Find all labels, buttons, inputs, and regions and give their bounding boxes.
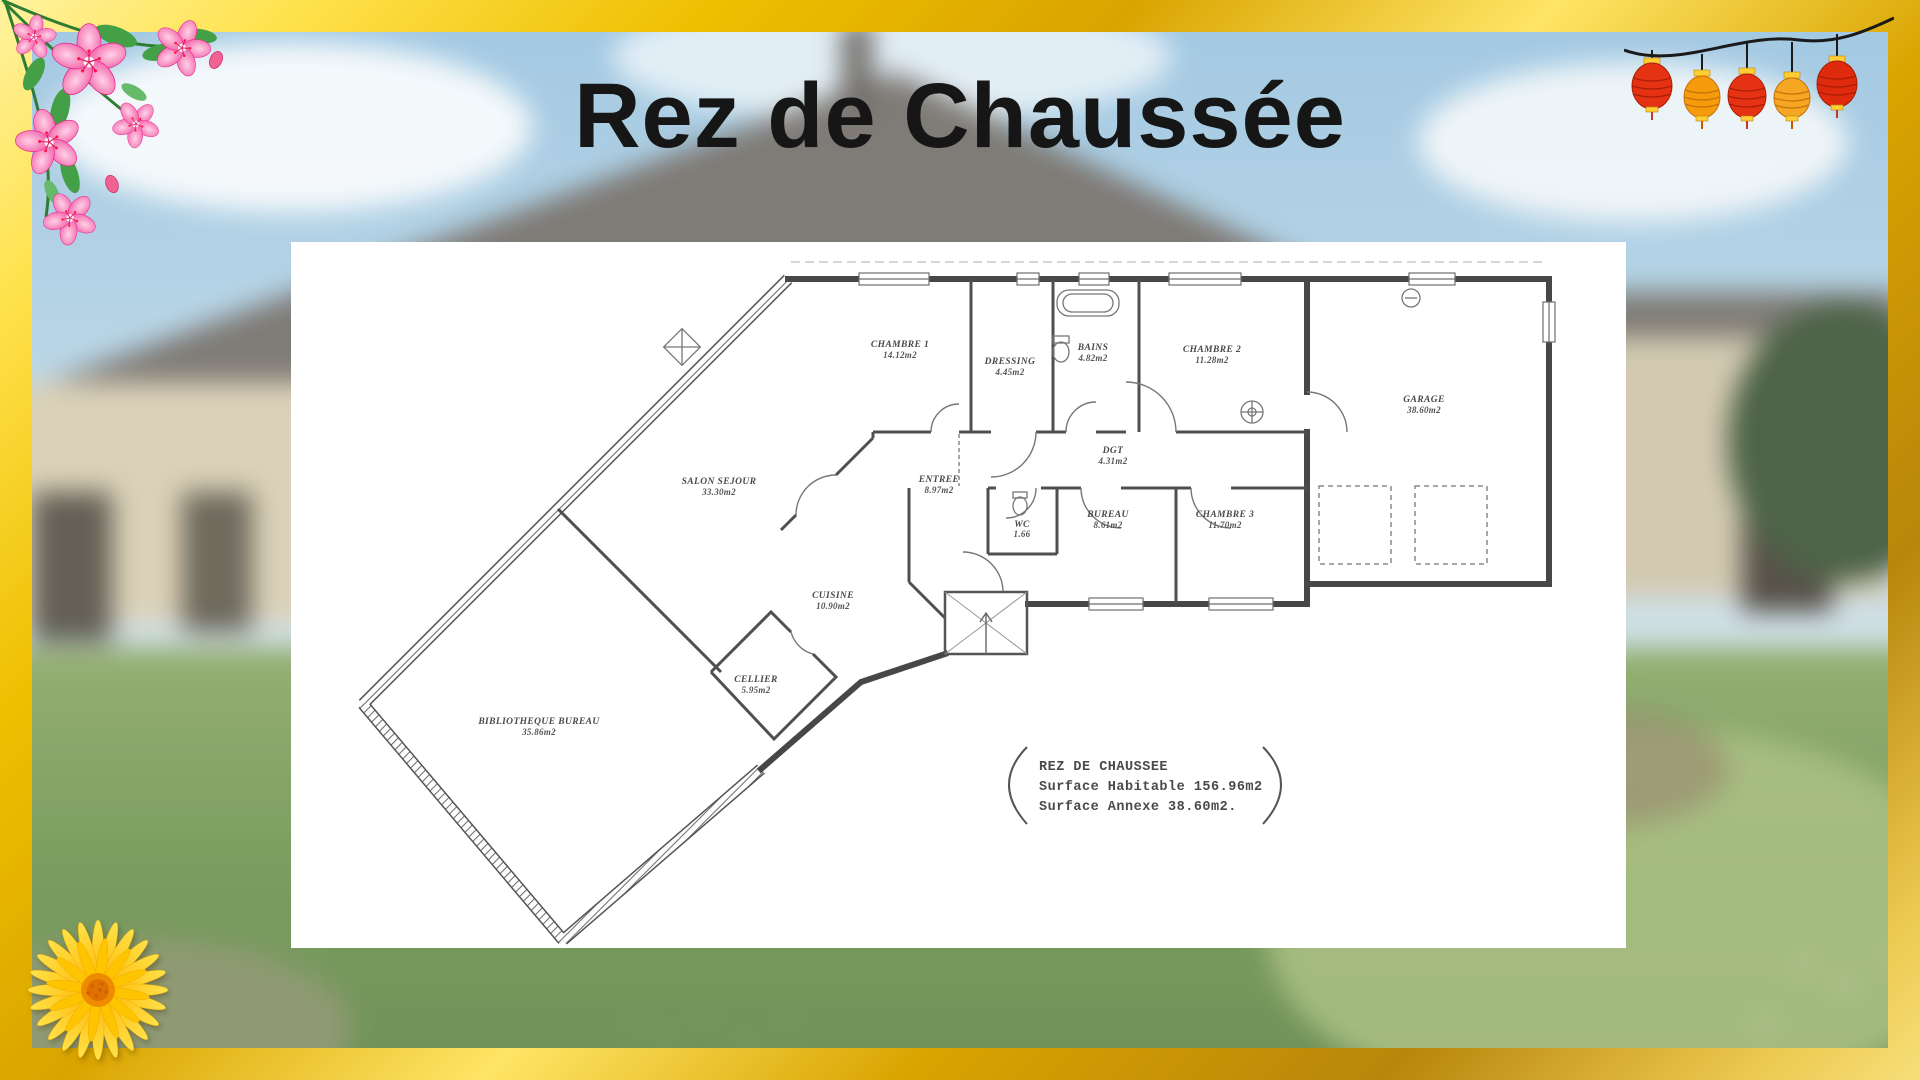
room-label: CHAMBRE 3 bbox=[1196, 510, 1254, 520]
room-label: CUISINE bbox=[812, 591, 854, 601]
room-area: 33.30m2 bbox=[701, 487, 736, 497]
toilet-icon bbox=[1053, 336, 1069, 362]
room-area: 14.12m2 bbox=[883, 350, 917, 360]
room-label: BAINS bbox=[1077, 343, 1109, 353]
entrance-porch bbox=[945, 592, 1027, 654]
summary-title: REZ DE CHAUSSEE bbox=[1039, 760, 1168, 775]
hatched-walls bbox=[363, 279, 788, 940]
room-label: SALON SEJOUR bbox=[682, 477, 757, 487]
garland-string bbox=[1624, 18, 1894, 56]
floorplan-drawing: CHAMBRE 1 14.12m2 DRESSING 4.45m2 BAINS … bbox=[291, 242, 1626, 948]
room-area: 11.70m2 bbox=[1208, 520, 1242, 530]
car-space bbox=[1319, 486, 1391, 564]
room-area: 1.66 bbox=[1014, 529, 1031, 539]
right-paren bbox=[1263, 747, 1281, 824]
room-label: GARAGE bbox=[1403, 395, 1444, 405]
room-area: 35.86m2 bbox=[521, 727, 556, 737]
paper-lanterns-icon bbox=[1624, 12, 1894, 162]
room-label: DGT bbox=[1102, 446, 1125, 456]
fireplace-icon bbox=[664, 329, 701, 366]
car-space bbox=[1415, 486, 1487, 564]
room-area: 8.61m2 bbox=[1093, 520, 1122, 530]
room-area: 4.45m2 bbox=[994, 367, 1024, 377]
room-label: ENTREE bbox=[918, 475, 959, 485]
room-label: BIBLIOTHEQUE BUREAU bbox=[477, 717, 600, 727]
room-label: CHAMBRE 1 bbox=[871, 340, 929, 350]
room-area: 5.95m2 bbox=[741, 685, 770, 695]
room-labels: CHAMBRE 1 14.12m2 DRESSING 4.45m2 BAINS … bbox=[477, 340, 1444, 737]
room-label: DRESSING bbox=[984, 357, 1036, 367]
dashed-lines bbox=[959, 434, 1487, 564]
room-label: CHAMBRE 2 bbox=[1183, 345, 1241, 355]
toilet-icon bbox=[1013, 492, 1027, 515]
pink-flowers-icon bbox=[0, 0, 294, 282]
room-label: BUREAU bbox=[1086, 510, 1129, 520]
room-area: 4.82m2 bbox=[1077, 353, 1107, 363]
left-paren bbox=[1009, 747, 1027, 824]
room-area: 8.97m2 bbox=[924, 485, 953, 495]
poster-page: { "title": "Rez de Chaussée", "floorplan… bbox=[0, 0, 1920, 1080]
room-label: CELLIER bbox=[734, 675, 777, 685]
ceiling-light-icon bbox=[1241, 401, 1263, 423]
room-area: 38.60m2 bbox=[1406, 405, 1441, 415]
surface-summary: REZ DE CHAUSSEE Surface Habitable 156.96… bbox=[1009, 747, 1281, 824]
vent-icon bbox=[1402, 289, 1420, 307]
room-area: 11.28m2 bbox=[1195, 355, 1229, 365]
door-arcs bbox=[791, 382, 1347, 654]
floorplan-panel: CHAMBRE 1 14.12m2 DRESSING 4.45m2 BAINS … bbox=[291, 242, 1626, 948]
room-area: 10.90m2 bbox=[816, 601, 850, 611]
exterior-walls bbox=[761, 279, 1549, 769]
summary-habitable: Surface Habitable 156.96m2 bbox=[1039, 780, 1263, 795]
room-area: 4.31m2 bbox=[1097, 456, 1127, 466]
yellow-daisy-icon bbox=[18, 908, 178, 1068]
summary-annexe: Surface Annexe 38.60m2. bbox=[1039, 800, 1237, 815]
windows bbox=[859, 273, 1555, 610]
